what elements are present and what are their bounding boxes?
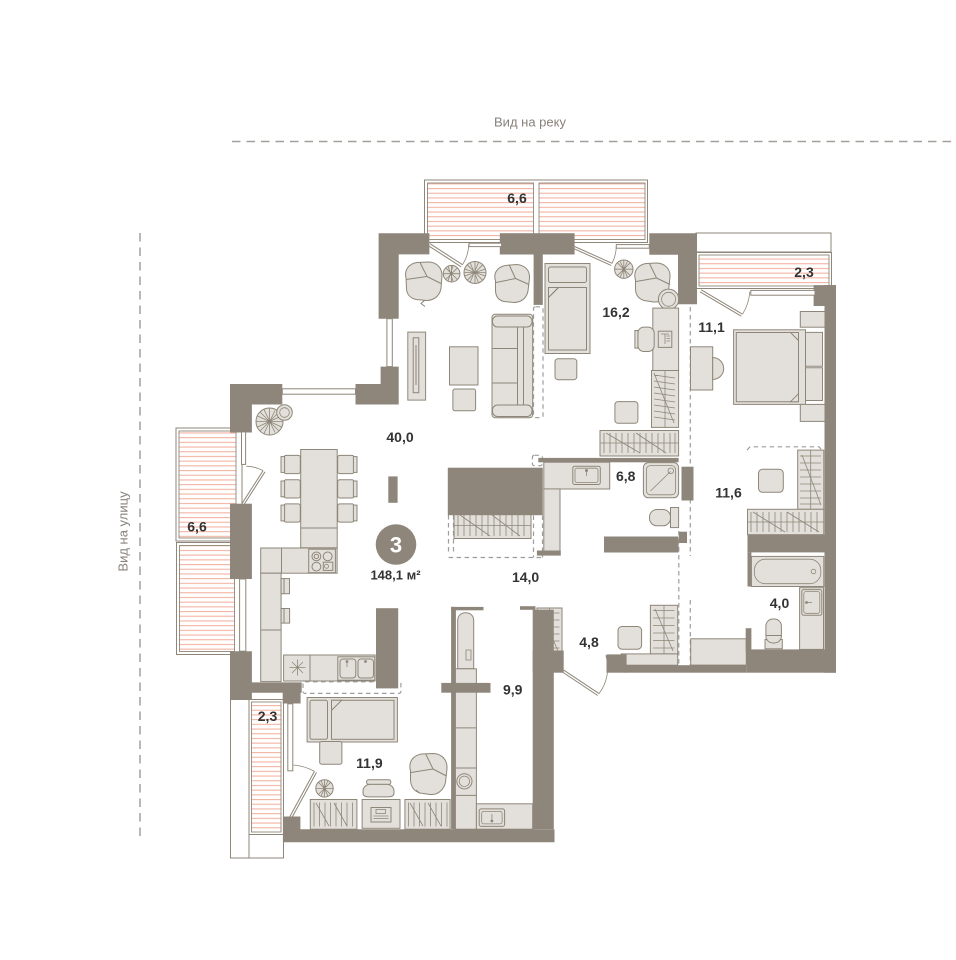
svg-text:148,1 м²: 148,1 м² xyxy=(370,568,421,583)
svg-text:Вид на улицу: Вид на улицу xyxy=(116,491,131,572)
svg-text:6,6: 6,6 xyxy=(187,519,207,535)
svg-text:9,9: 9,9 xyxy=(503,682,523,698)
svg-text:14,0: 14,0 xyxy=(512,569,539,585)
svg-text:11,9: 11,9 xyxy=(356,755,383,771)
svg-text:11,6: 11,6 xyxy=(715,485,742,501)
svg-text:Вид на реку: Вид на реку xyxy=(494,115,566,130)
svg-text:2,3: 2,3 xyxy=(794,264,814,280)
svg-text:11,1: 11,1 xyxy=(698,319,725,335)
svg-text:4,8: 4,8 xyxy=(579,634,599,650)
svg-text:6,6: 6,6 xyxy=(507,190,527,206)
svg-text:6,8: 6,8 xyxy=(616,468,636,484)
svg-text:40,0: 40,0 xyxy=(386,429,413,445)
svg-text:4,0: 4,0 xyxy=(770,595,790,611)
svg-text:2,3: 2,3 xyxy=(258,708,278,724)
svg-text:16,2: 16,2 xyxy=(602,304,629,320)
svg-text:3: 3 xyxy=(390,533,402,558)
